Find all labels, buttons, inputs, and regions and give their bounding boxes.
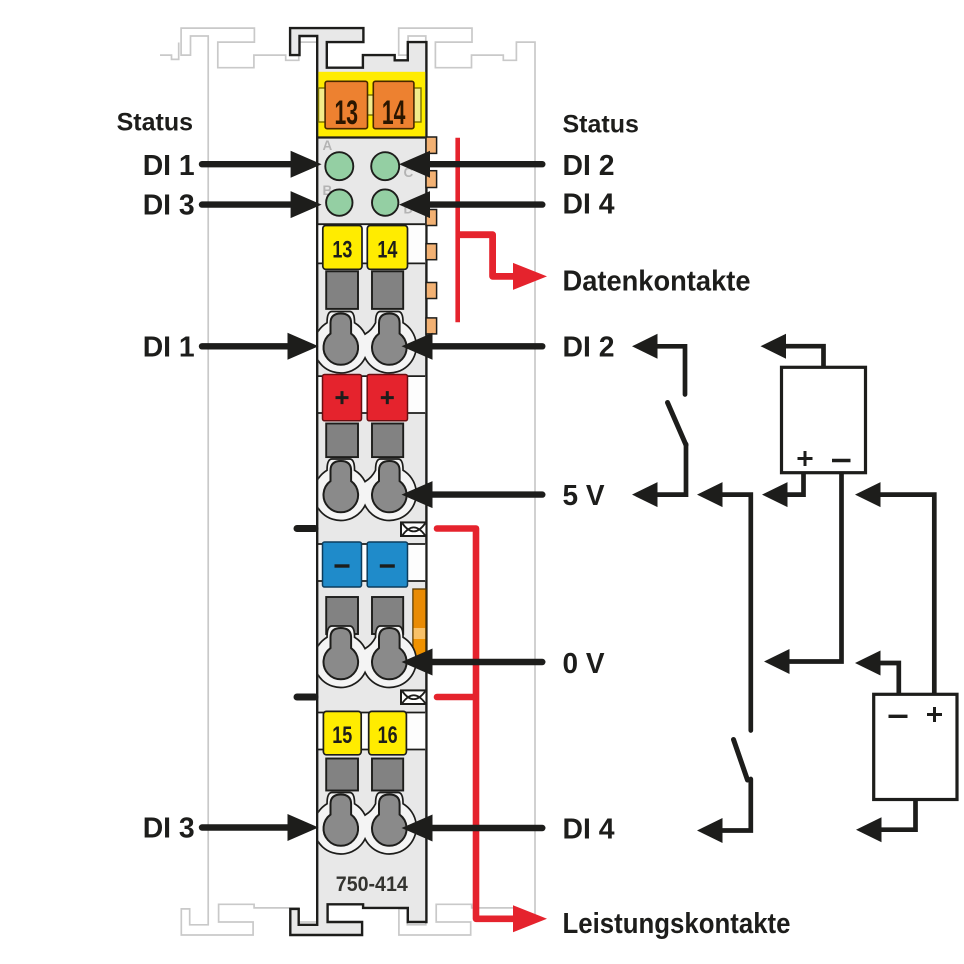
- svg-text:Status: Status: [117, 109, 193, 137]
- svg-text:DI 2: DI 2: [563, 150, 615, 182]
- svg-text:Leistungskontakte: Leistungskontakte: [563, 908, 791, 940]
- svg-text:14: 14: [382, 94, 406, 132]
- svg-text:DI 3: DI 3: [143, 813, 195, 845]
- svg-text:5 V: 5 V: [563, 480, 606, 512]
- svg-text:15: 15: [332, 722, 352, 749]
- svg-text:DI 4: DI 4: [563, 814, 615, 846]
- svg-text:DI 3: DI 3: [143, 190, 195, 222]
- svg-text:DI 1: DI 1: [143, 150, 195, 182]
- svg-text:750-414: 750-414: [336, 873, 408, 896]
- svg-text:13: 13: [332, 237, 352, 264]
- svg-text:16: 16: [378, 722, 398, 749]
- svg-text:DI 2: DI 2: [563, 332, 615, 364]
- svg-text:14: 14: [377, 237, 397, 264]
- svg-text:A: A: [323, 138, 333, 153]
- svg-text:0 V: 0 V: [563, 648, 606, 680]
- svg-text:DI 4: DI 4: [563, 189, 615, 221]
- svg-text:Status: Status: [563, 111, 639, 139]
- svg-text:Datenkontakte: Datenkontakte: [563, 266, 751, 298]
- svg-text:13: 13: [335, 94, 359, 132]
- svg-text:DI 1: DI 1: [143, 332, 195, 364]
